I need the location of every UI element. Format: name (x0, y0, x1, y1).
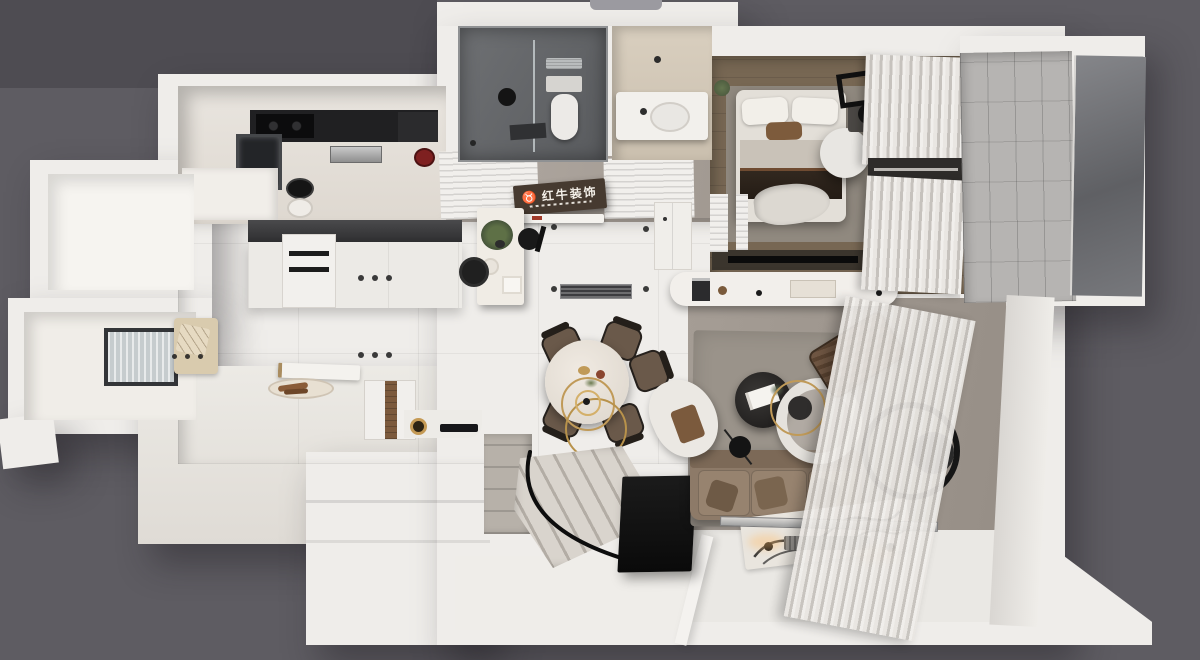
counter-puck-light (410, 418, 427, 435)
faucet (640, 108, 647, 115)
balcony-tile-floor (960, 51, 1076, 303)
accent-pillow-brown (766, 121, 803, 140)
floor-spotlight (358, 275, 364, 281)
plant-pot (495, 240, 505, 248)
pillow (791, 97, 838, 125)
apartment-floorplan-render: ♉红牛装饰 (0, 0, 1200, 660)
desk-tray (268, 378, 334, 399)
balcony-glass-wall (1070, 55, 1146, 296)
kettle (287, 198, 313, 218)
cabinet-wood-door (385, 381, 397, 439)
wall-hook (198, 354, 203, 359)
bedroom-plant (714, 80, 730, 96)
low-counter (404, 410, 482, 438)
window-glass-line (874, 168, 958, 171)
floor-spotlight (386, 352, 392, 358)
floor-spotlight (643, 286, 649, 292)
toilet-tank (546, 76, 582, 92)
side-table-black-disc (788, 396, 812, 420)
gold-dish (578, 366, 590, 375)
stair-black-partition (617, 475, 696, 572)
island-counter-face (248, 242, 462, 308)
kitchen-dark-cabinet (398, 112, 438, 142)
floor-spotlight (551, 286, 557, 292)
floor-drain (470, 140, 476, 146)
flat-tv-on-bench (728, 256, 858, 263)
wardrobe-knob (663, 217, 667, 221)
wood-utensil (284, 388, 308, 395)
counter-slot-vent (440, 424, 478, 432)
floor-lamp-shade (729, 436, 751, 458)
floor-spotlight (372, 352, 378, 358)
wardrobe-door-seam (672, 203, 673, 269)
sink-basin (650, 102, 690, 132)
wall-hook (172, 354, 177, 359)
vanity-floor-drain (654, 56, 661, 63)
floor-spotlight (372, 275, 378, 281)
floor-spotlight (551, 224, 557, 230)
sideboard-knob (756, 290, 762, 296)
wall-sliver-left-edge (0, 413, 59, 469)
rice-cooker (286, 178, 314, 199)
shower-bench (510, 123, 547, 140)
toilet-bowl (551, 94, 578, 140)
water-heater-top (590, 0, 662, 10)
bedroom-curtain-lower (861, 175, 967, 294)
throw-pillow (753, 475, 789, 511)
left-balcony-interior (48, 174, 194, 290)
bedroom-curtain-upper (862, 54, 966, 167)
glass-brick-window (104, 328, 178, 386)
floor-spotlight (358, 352, 364, 358)
sideboard-knob (876, 290, 882, 296)
shower-head (498, 88, 516, 106)
appliance-stack (282, 234, 336, 308)
chandelier-canopy (583, 398, 590, 405)
radiator-panel (736, 194, 748, 250)
fruit-bowl (596, 370, 605, 379)
kitchen-side-counter (182, 168, 278, 220)
platform-step-shadow (306, 500, 490, 503)
range-hood (330, 146, 382, 163)
island-rack (502, 276, 522, 294)
bar-stool (459, 257, 489, 287)
floor-spotlight (643, 226, 649, 232)
shelf-red-item (532, 216, 542, 220)
wall-hook (185, 354, 190, 359)
red-pot (414, 148, 435, 167)
sign-shelf (520, 214, 604, 223)
coffee-cup (718, 286, 727, 295)
armchair-throw (670, 404, 706, 445)
vanity-cabinet (616, 92, 708, 140)
hallway-wardrobe (654, 202, 692, 270)
platform-step-shadow (306, 540, 490, 543)
island-counter-top (248, 220, 462, 242)
serving-tray (790, 280, 836, 298)
towel-rail (546, 58, 582, 69)
radiator-panel (710, 194, 728, 252)
bull-icon: ♉ (521, 191, 539, 204)
oven-slit (289, 251, 329, 256)
floor-spotlight (386, 275, 392, 281)
microwave-slit (289, 267, 329, 272)
coffee-machine (692, 278, 710, 301)
floor-ac-vent (560, 284, 632, 299)
bench-pillow (175, 323, 210, 357)
warm-accent-glow (748, 534, 784, 550)
